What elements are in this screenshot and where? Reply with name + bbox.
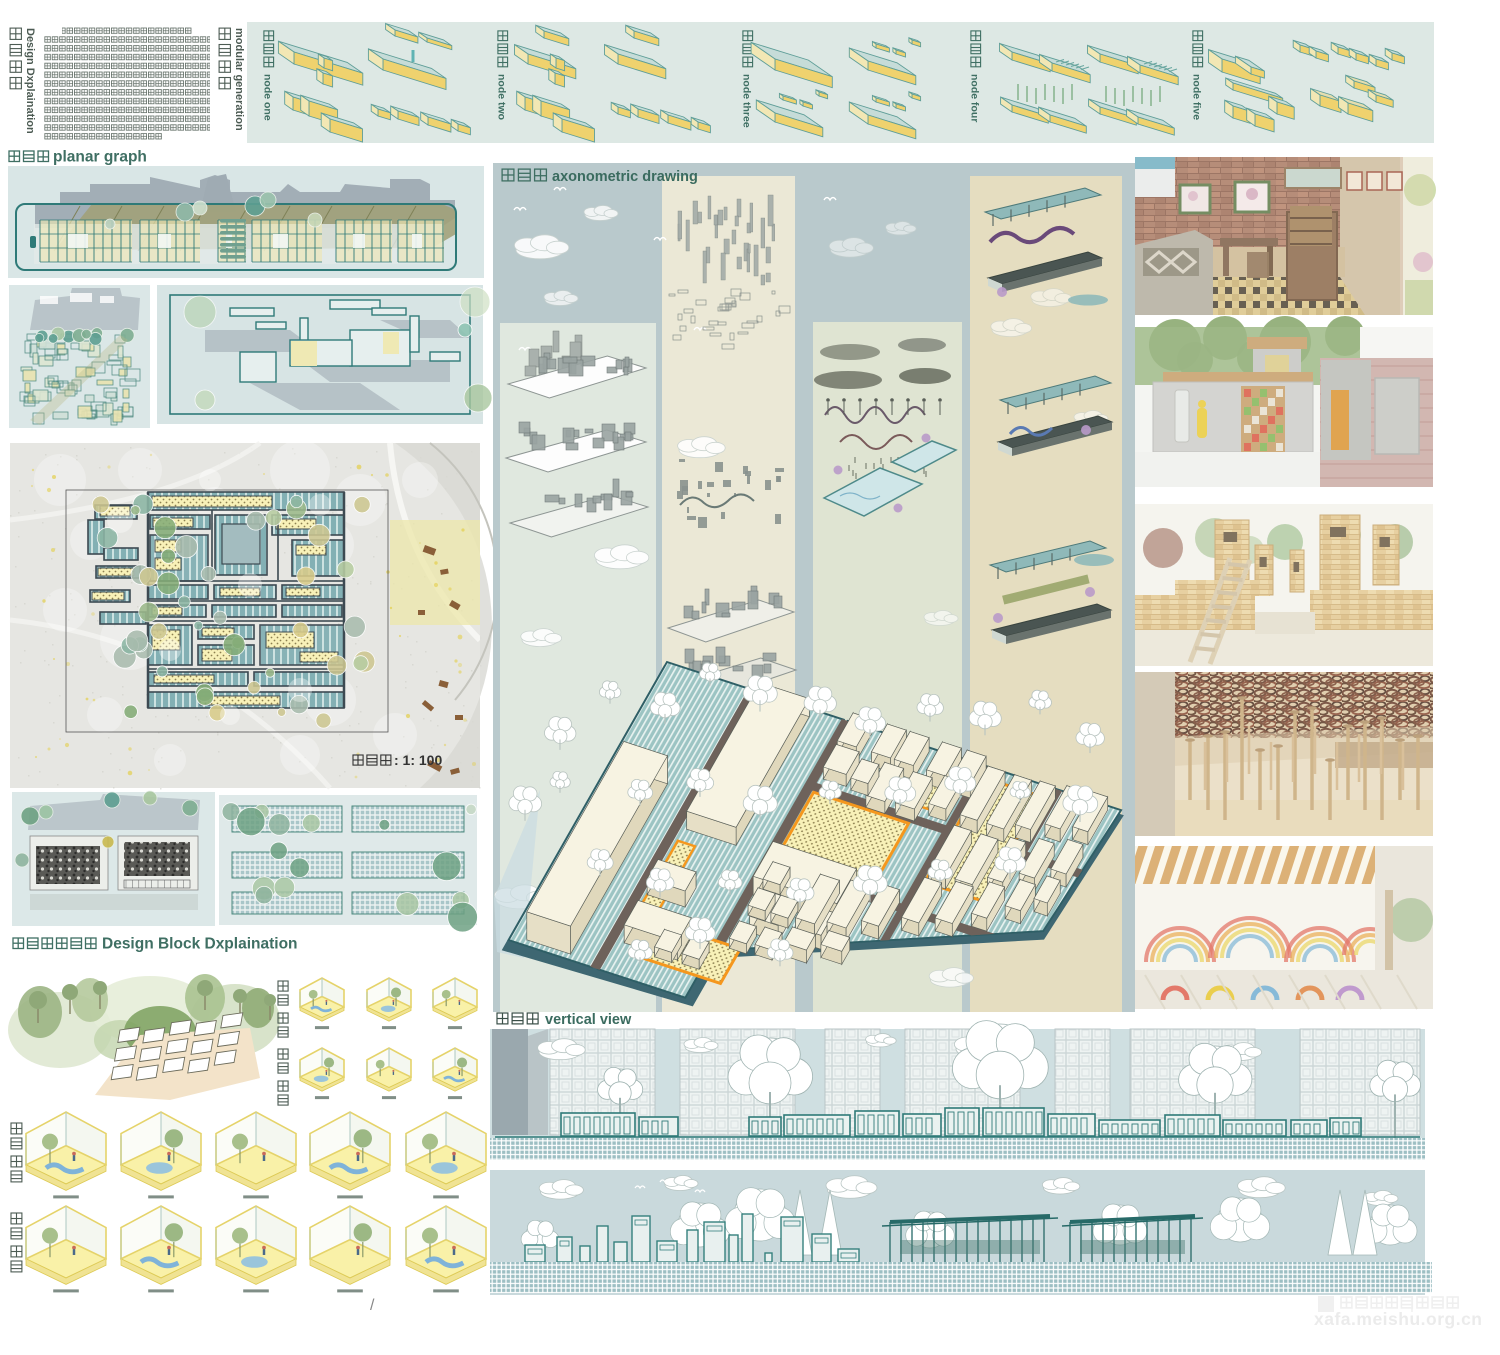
svg-text:node five: node five [1191,74,1203,120]
svg-text:modular generation: modular generation [233,28,245,131]
svg-text:planar graph: planar graph [53,149,147,166]
svg-text:xafa.meishu.org.cn: xafa.meishu.org.cn [1314,1309,1483,1329]
svg-text:/: / [370,1297,375,1314]
svg-text:axonometric drawing: axonometric drawing [552,169,698,185]
svg-text:node three: node three [741,74,753,128]
svg-text:: 1: 100: : 1: 100 [394,752,442,768]
svg-text:Design Dxplaination: Design Dxplaination [24,28,36,134]
svg-text:node four: node four [969,74,981,122]
svg-text:node one: node one [262,74,274,121]
svg-text:node two: node two [496,74,508,120]
svg-text:vertical view: vertical view [545,1012,632,1028]
svg-text:Design Block Dxplaination: Design Block Dxplaination [102,936,298,953]
